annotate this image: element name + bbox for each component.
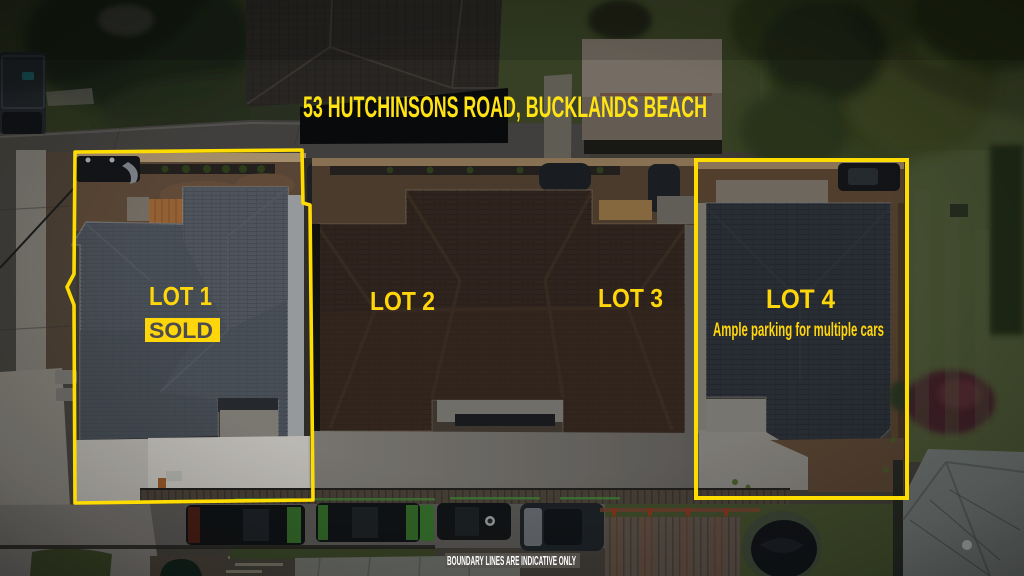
svg-text:Ample parking for multiple car: Ample parking for multiple cars [713, 320, 884, 341]
svg-text:LOT 4: LOT 4 [766, 284, 835, 314]
svg-text:LOT 2: LOT 2 [370, 286, 435, 316]
svg-text:BOUNDARY LINES ARE INDICATIVE: BOUNDARY LINES ARE INDICATIVE ONLY [447, 554, 576, 568]
svg-text:53 HUTCHINSONS ROAD, BUCKLANDS: 53 HUTCHINSONS ROAD, BUCKLANDS BEACH [303, 91, 707, 124]
svg-text:LOT 1: LOT 1 [149, 281, 212, 311]
svg-text:LOT 3: LOT 3 [598, 283, 663, 313]
svg-text:SOLD: SOLD [149, 318, 213, 343]
